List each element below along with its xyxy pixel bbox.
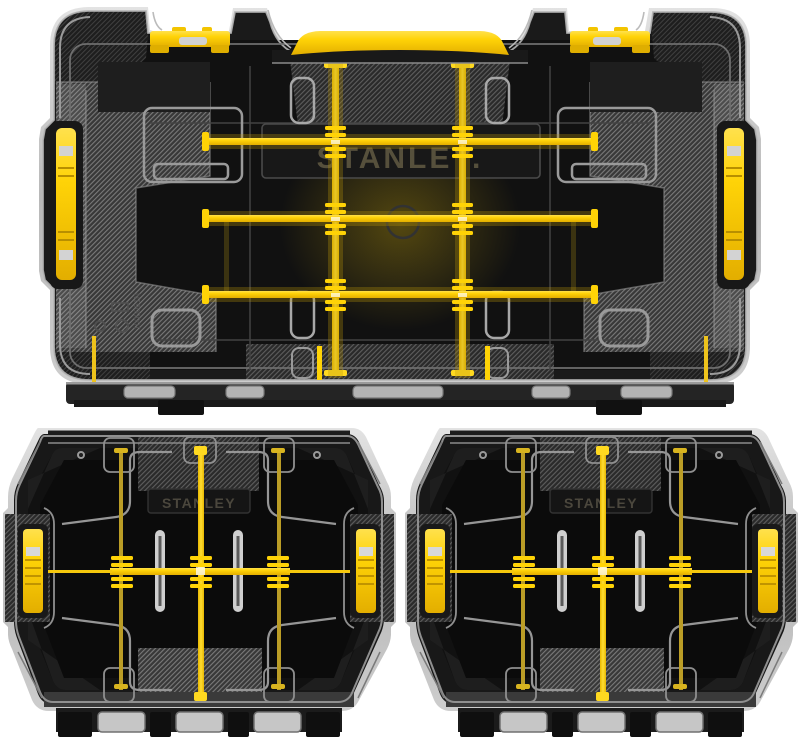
svg-text:1000061N: 1000061N (133, 293, 142, 330)
